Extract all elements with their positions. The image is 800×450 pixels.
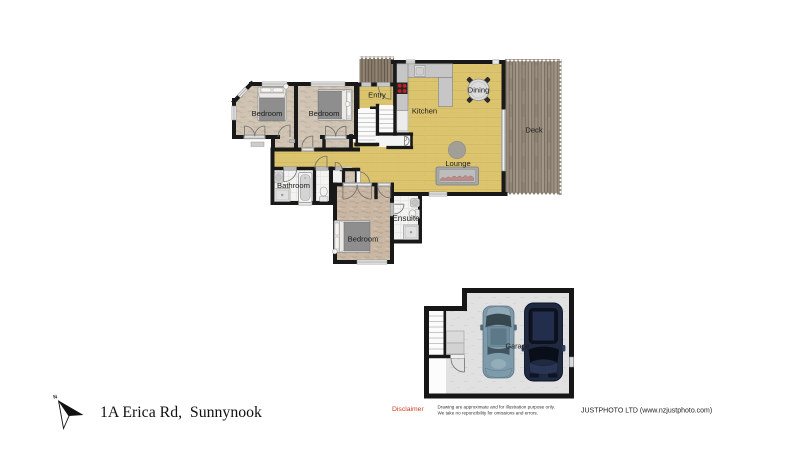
- svg-text:JUSTPHOTO LTD (www.nzjustphoto: JUSTPHOTO LTD (www.nzjustphoto.com): [581, 408, 712, 415]
- svg-text:1A Erica Rd, Sunnynook: 1A Erica Rd, Sunnynook: [100, 404, 262, 421]
- svg-text:Drawing are approximate and fo: Drawing are approximate and for illustra…: [438, 405, 555, 410]
- svg-text:Bathroom: Bathroom: [277, 181, 310, 190]
- svg-text:Garage: Garage: [506, 342, 530, 351]
- svg-text:Disclaimer: Disclaimer: [392, 406, 424, 413]
- svg-text:N: N: [53, 394, 58, 401]
- svg-text:Deck: Deck: [525, 126, 543, 135]
- svg-text:Kitchen: Kitchen: [412, 107, 437, 116]
- svg-text:We take no reponcibility for o: We take no reponcibility for omissions a…: [438, 411, 539, 416]
- svg-text:Entry: Entry: [368, 91, 386, 100]
- svg-text:Ensuite: Ensuite: [392, 214, 420, 223]
- svg-text:Lounge: Lounge: [445, 159, 470, 168]
- svg-text:Dining: Dining: [468, 86, 490, 95]
- svg-text:Bedroom: Bedroom: [348, 235, 379, 244]
- svg-text:Bedroom: Bedroom: [309, 109, 340, 118]
- svg-text:Bedroom: Bedroom: [252, 109, 283, 118]
